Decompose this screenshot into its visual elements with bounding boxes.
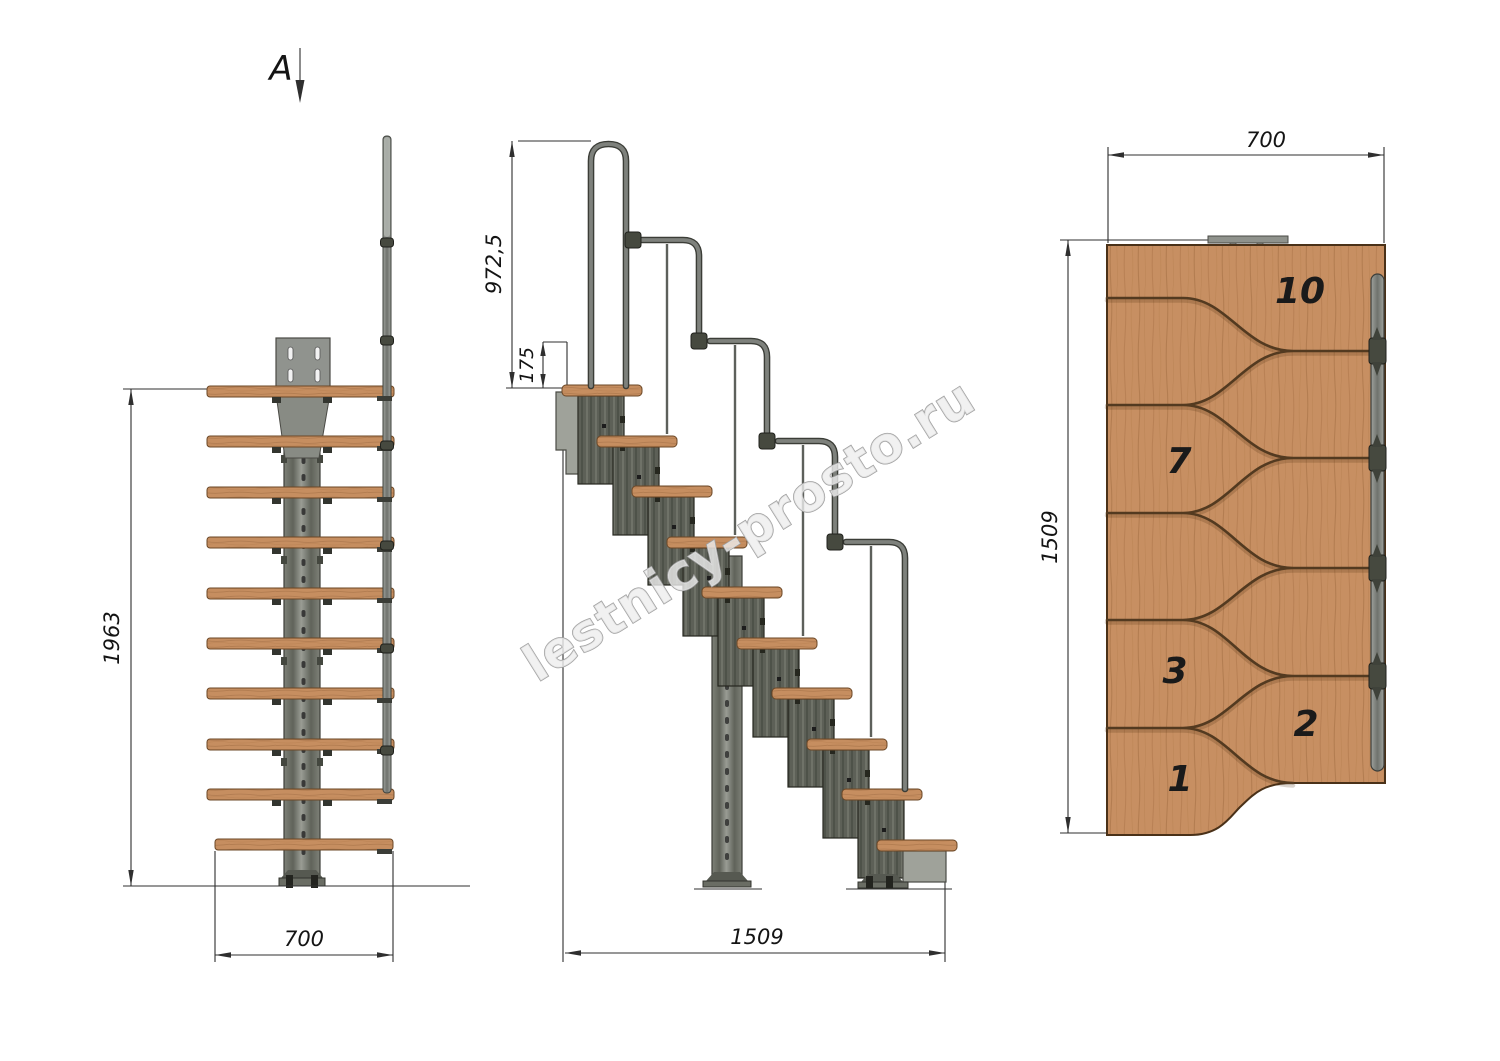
tread <box>772 688 852 699</box>
tread <box>807 739 887 750</box>
tread <box>207 739 394 750</box>
plan-structure: 10 7 3 2 1 <box>1107 236 1386 835</box>
tread <box>737 638 817 649</box>
tread <box>207 537 394 548</box>
tread <box>207 789 394 800</box>
dim-label-700-front: 700 <box>284 927 324 951</box>
tread <box>207 588 394 599</box>
step-number-7: 7 <box>1166 441 1191 482</box>
handrail-segment <box>710 341 767 433</box>
rail-clamp <box>625 232 641 248</box>
top-view: 700 1509 <box>1038 128 1386 835</box>
rail-clamp <box>691 333 707 349</box>
dim-label-972-5: 972,5 <box>482 234 506 294</box>
tread <box>207 436 394 447</box>
wall-mount-plate <box>276 338 330 390</box>
handrail-segment <box>641 240 699 333</box>
dim-label-1509-side: 1509 <box>730 925 783 949</box>
rail-clamp <box>827 534 843 550</box>
section-label: A <box>267 49 292 89</box>
drawing-page: A 1963 <box>0 0 1500 1061</box>
tread <box>877 840 957 851</box>
tread <box>597 436 677 447</box>
step-number-3: 3 <box>1162 651 1187 692</box>
base-foot <box>279 870 325 888</box>
dim-label-700-top: 700 <box>1246 128 1286 152</box>
staircase-technical-drawing: A 1963 <box>0 0 1500 1061</box>
rail-clamp <box>759 433 775 449</box>
section-arrow-icon <box>296 80 305 103</box>
top-gusset <box>276 394 330 458</box>
dim-label-1509-top: 1509 <box>1038 510 1062 563</box>
tread <box>207 638 394 649</box>
dim-side-length: 1509 <box>565 925 945 956</box>
dim-label-175: 175 <box>516 347 538 383</box>
support-column-base <box>703 872 751 887</box>
section-mark: A <box>267 48 304 103</box>
tread <box>632 486 712 497</box>
bottom-tread <box>215 839 393 850</box>
front-structure <box>207 136 394 888</box>
step-number-10: 10 <box>1275 271 1325 312</box>
step-number-1: 1 <box>1167 759 1192 800</box>
dim-side-riser: 175 <box>516 342 567 388</box>
front-view: A 1963 <box>100 48 470 962</box>
dim-top-width: 700 <box>1108 128 1384 243</box>
tread <box>842 789 922 800</box>
tread <box>562 385 642 396</box>
tread <box>702 587 782 598</box>
tread <box>207 386 394 397</box>
tread <box>207 688 394 699</box>
module <box>858 800 904 878</box>
dim-label-1963: 1963 <box>100 611 124 664</box>
handrail-loop <box>591 144 626 386</box>
tread <box>207 487 394 498</box>
step-number-2: 2 <box>1293 704 1318 745</box>
handrail-plan <box>1369 274 1386 771</box>
